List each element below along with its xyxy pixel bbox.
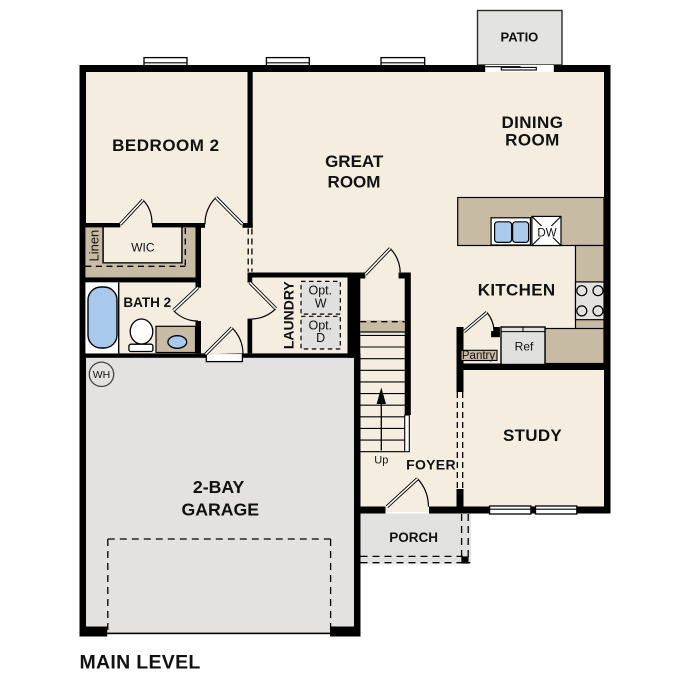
svg-text:KITCHEN: KITCHEN	[478, 281, 556, 300]
svg-text:Linen: Linen	[87, 230, 102, 262]
svg-text:Ref: Ref	[515, 339, 534, 353]
svg-text:Up: Up	[374, 454, 388, 466]
svg-text:BATH 2: BATH 2	[123, 295, 171, 310]
svg-text:WIC: WIC	[131, 240, 155, 254]
svg-text:MAIN LEVEL: MAIN LEVEL	[80, 651, 201, 673]
svg-text:BEDROOM 2: BEDROOM 2	[112, 136, 219, 155]
svg-text:WH: WH	[93, 369, 111, 381]
svg-text:PATIO: PATIO	[501, 30, 539, 45]
svg-text:LAUNDRY: LAUNDRY	[280, 281, 296, 350]
svg-text:PORCH: PORCH	[389, 530, 438, 545]
svg-text:W: W	[315, 297, 327, 311]
svg-text:Opt.: Opt.	[308, 284, 332, 298]
svg-text:DW: DW	[537, 227, 556, 239]
svg-text:GREAT: GREAT	[325, 152, 384, 171]
svg-text:ROOM: ROOM	[328, 172, 381, 191]
svg-text:Pantry: Pantry	[462, 350, 495, 362]
svg-text:DINING: DINING	[501, 113, 563, 132]
svg-text:FOYER: FOYER	[406, 456, 456, 472]
svg-text:STUDY: STUDY	[503, 426, 562, 445]
svg-text:ROOM: ROOM	[505, 130, 559, 149]
svg-text:D: D	[316, 331, 325, 345]
svg-text:GARAGE: GARAGE	[181, 500, 259, 520]
svg-text:2-BAY: 2-BAY	[193, 477, 245, 497]
